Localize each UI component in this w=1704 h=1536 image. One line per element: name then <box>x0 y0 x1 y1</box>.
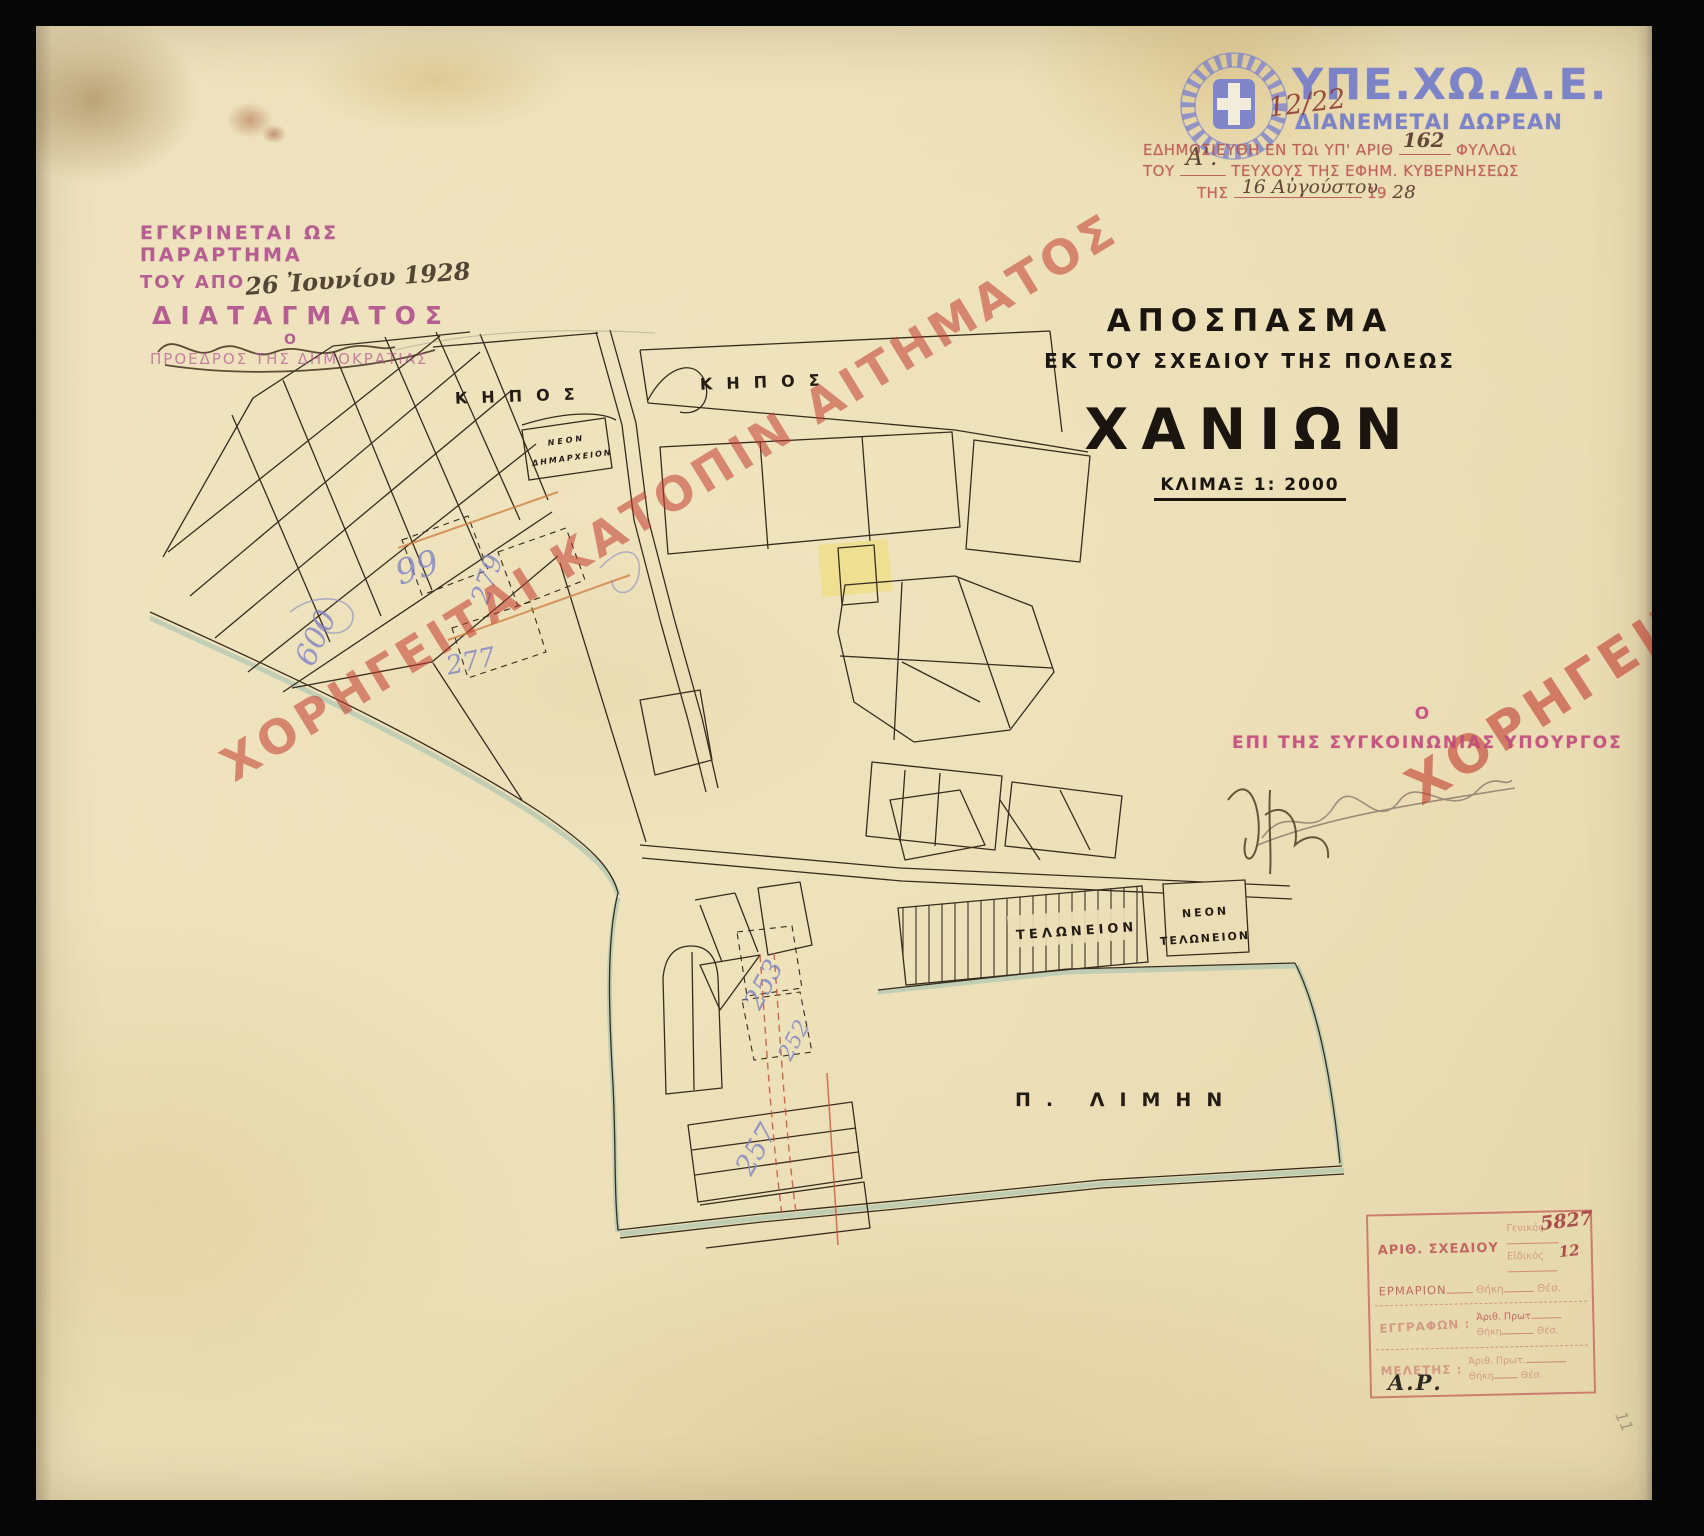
scanned-map-page: 99 600 279 277 253 252 257 ΚΗΠΟΣ ΚΗΠΟΣ Ν… <box>0 0 1704 1536</box>
pub-l1-blank: 162 <box>1399 142 1451 155</box>
approval-line2: ΤΟΥ ΑΠΟ 26 Ἰουνίου 1928 <box>140 272 490 293</box>
registry-cabinet-label: ΕΡΜΑΡΙΟΝ <box>1379 1283 1447 1299</box>
annotation-277: 277 <box>443 642 499 682</box>
minister-stamp-line2: ΕΠΙ ΤΗΣ ΣΥΓΚΟΙΝΩΝΙΑΣ ΥΠΟΥΡΓΟΣ <box>1232 733 1542 753</box>
registry-docs-row: ΕΓΓΡΑΦΩΝ : Ἀριθ. Πρωτ. Θήκη Θέσ. <box>1379 1308 1584 1343</box>
corner-initials: Α.Ρ. <box>1388 1370 1443 1395</box>
registry-special-label: Εἰδικός <box>1507 1251 1544 1263</box>
registry-plan-number-label: ΑΡΙΘ. ΣΧΕΔΙΟΥ <box>1378 1240 1499 1258</box>
annotation-279: 279 <box>465 551 509 608</box>
harbor-structures <box>663 882 870 1248</box>
annotation-252: 252 <box>773 1016 815 1066</box>
registry-row-plan-number: ΑΡΙΘ. ΣΧΕΔΙΟΥ Γενικός 5827 Εἰδικός 12 <box>1377 1218 1582 1279</box>
registry-study-protocol-label: Ἀριθ. Πρωτ. <box>1468 1355 1526 1367</box>
registry-general-label: Γενικός <box>1506 1223 1544 1235</box>
pub-l2-blank: Α'. <box>1180 163 1226 176</box>
annotation-99: 99 <box>390 542 444 593</box>
approval-line3: ΔΙΑΤΑΓΜΑΤΟΣ <box>140 301 490 330</box>
registry-docs-label: ΕΓΓΡΑΦΩΝ : <box>1379 1317 1471 1344</box>
annotation-600: 600 <box>288 605 344 672</box>
registry-general-value: 5827 <box>1539 1207 1594 1235</box>
approval-line4: Ο <box>140 332 440 348</box>
minister-stamp-line1: Ο <box>1232 704 1542 724</box>
handwritten-annotations: 99 600 279 277 253 252 257 <box>288 542 815 1181</box>
approval-line2-prefix: ΤΟΥ ΑΠΟ <box>140 272 245 293</box>
approval-line5: ΠΡΟΕΔΡΟΣ ΤΗΣ ΔΗΜΟΚΡΑΤΙΑΣ <box>140 350 490 368</box>
sheet-content: 99 600 279 277 253 252 257 ΚΗΠΟΣ ΚΗΠΟΣ Ν… <box>36 26 1652 1500</box>
title-line2: ΕΚ ΤΟΥ ΣΧΕΔΙΟΥ ΤΗΣ ΠΟΛΕΩΣ <box>1030 349 1470 373</box>
label-garden-left: ΚΗΠΟΣ <box>455 384 589 408</box>
publication-stamp: ΕΔΗΜΟΣΙΕΥΘΗ ΕΝ ΤΩι ΥΠ' ΑΡΙΘ 162 ΦΥΛΛΩι Τ… <box>1143 140 1573 204</box>
registry-case-label: Θήκη <box>1476 1283 1504 1296</box>
map-sheet: 99 600 279 277 253 252 257 ΚΗΠΟΣ ΚΗΠΟΣ Ν… <box>36 26 1652 1500</box>
pub-l3-blank: 16 Αὐγούστου <box>1234 185 1362 198</box>
publication-stamp-line3: ΤΗΣ 16 Αὐγούστου 19 28 <box>1143 182 1573 204</box>
pub-l1-text: ΕΔΗΜΟΣΙΕΥΘΗ ΕΝ ΤΩι ΥΠ' ΑΡΙΘ <box>1143 141 1393 159</box>
registry-docs-case-label: Θήκη <box>1477 1327 1502 1339</box>
title-block: ΑΠΟΣΠΑΣΜΑ ΕΚ ΤΟΥ ΣΧΕΔΙΟΥ ΤΗΣ ΠΟΛΕΩΣ ΧΑΝΙ… <box>1030 303 1470 501</box>
title-scale: ΚΛΙΜΑΞ 1: 2000 <box>1154 475 1345 501</box>
registry-docs-protocol-label: Ἀριθ. Πρωτ. <box>1476 1311 1534 1323</box>
approval-stamp: ΕΓΚΡΙΝΕΤΑΙ ΩΣ ΠΑΡΑΡΤΗΜΑ ΤΟΥ ΑΠΟ 26 Ἰουνί… <box>140 222 490 368</box>
minister-stamp: Ο ΕΠΙ ΤΗΣ ΣΥΓΚΟΙΝΩΝΙΑΣ ΥΠΟΥΡΓΟΣ <box>1232 704 1542 753</box>
registry-special-row: Εἰδικός 12 <box>1507 1250 1582 1276</box>
label-garden-right: ΚΗΠΟΣ <box>700 370 834 394</box>
label-city-hall-1: ΝΕΟΝ <box>547 433 586 447</box>
label-city-hall-2: ΔΗΜΑΡΧΕΙΟΝ <box>531 448 613 468</box>
minister-ink-signature <box>1228 789 1328 874</box>
title-city: ΧΑΝΙΩΝ <box>1030 397 1470 463</box>
pub-l2-text: ΤΟΥ <box>1143 162 1175 180</box>
pub-l3-year: 28 <box>1392 182 1416 203</box>
annotation-253: 253 <box>738 955 790 1016</box>
pub-l1-number: 162 <box>1403 130 1445 151</box>
registry-pos-label: Θέσ. <box>1537 1282 1561 1295</box>
registry-study-case-label: Θήκη <box>1469 1371 1494 1383</box>
annotation-257: 257 <box>728 1118 784 1182</box>
registry-special-value: 12 <box>1558 1241 1581 1261</box>
pub-l3-text: ΤΗΣ <box>1197 184 1228 202</box>
registry-cabinet-row: ΕΡΜΑΡΙΟΝ Θήκη Θέσ. <box>1379 1280 1583 1299</box>
label-harbor: Π. ΛΙΜΗΝ <box>1015 1089 1237 1111</box>
title-line1: ΑΠΟΣΠΑΣΜΑ <box>1030 303 1470 339</box>
registry-docs-pos-label: Θέσ. <box>1537 1325 1559 1336</box>
registry-study-pos-label: Θέσ. <box>1521 1370 1543 1381</box>
pub-l3-date: 16 Αὐγούστου <box>1242 177 1378 198</box>
pub-l1-suffix: ΦΥΛΛΩι <box>1456 141 1517 159</box>
pub-l2-entry: Α'. <box>1186 147 1218 168</box>
